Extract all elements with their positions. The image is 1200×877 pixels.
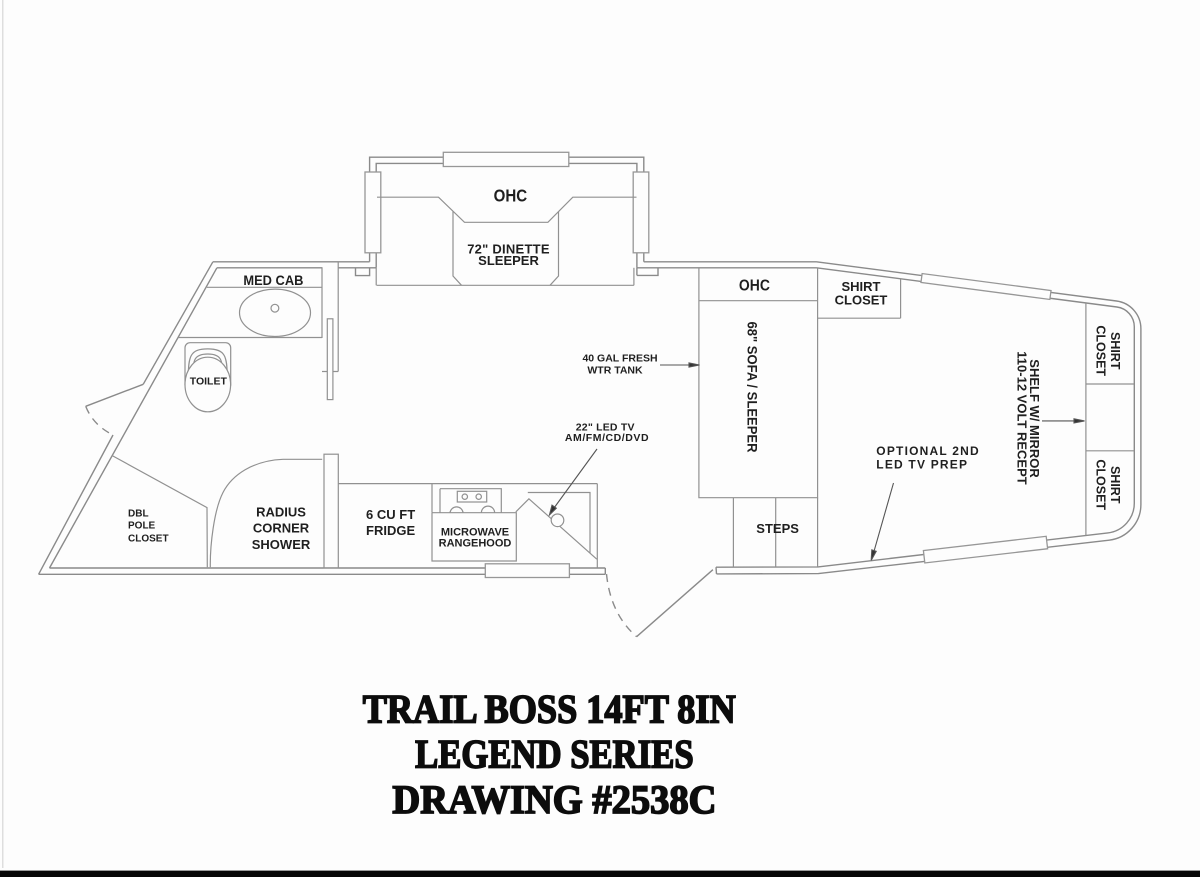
svg-text:TRAIL BOSS 14FT 8IN: TRAIL BOSS 14FT 8IN <box>363 687 736 732</box>
svg-text:CLOSET: CLOSET <box>128 533 169 544</box>
svg-text:RANGEHOOD: RANGEHOOD <box>439 538 512 550</box>
svg-text:SHOWER: SHOWER <box>252 537 311 552</box>
svg-text:AM/FM/CD/DVD: AM/FM/CD/DVD <box>565 432 649 444</box>
svg-text:CLOSET: CLOSET <box>1094 325 1108 376</box>
svg-text:DRAWING #2538C: DRAWING #2538C <box>392 777 716 822</box>
svg-text:SHIRT: SHIRT <box>1108 332 1122 370</box>
svg-text:MED CAB: MED CAB <box>243 272 303 288</box>
svg-text:CORNER: CORNER <box>253 521 310 536</box>
svg-text:FRIDGE: FRIDGE <box>366 523 415 538</box>
svg-text:SLEEPER: SLEEPER <box>478 253 539 268</box>
svg-text:OHC: OHC <box>494 185 528 205</box>
svg-text:OHC: OHC <box>739 277 770 294</box>
svg-text:CLOSET: CLOSET <box>835 293 888 308</box>
svg-text:TOILET: TOILET <box>190 376 228 388</box>
svg-text:LED TV PREP: LED TV PREP <box>876 458 968 472</box>
svg-text:POLE: POLE <box>128 521 156 532</box>
svg-text:6 CU FT: 6 CU FT <box>366 507 415 522</box>
svg-text:LEGEND SERIES: LEGEND SERIES <box>415 732 694 777</box>
svg-text:OPTIONAL 2ND: OPTIONAL 2ND <box>876 444 980 458</box>
svg-text:68" SOFA / SLEEPER: 68" SOFA / SLEEPER <box>745 322 761 453</box>
svg-text:SHIRT: SHIRT <box>1108 466 1122 504</box>
svg-text:STEPS: STEPS <box>756 521 799 536</box>
svg-text:DBL: DBL <box>128 509 149 520</box>
svg-text:40 GAL FRESH: 40 GAL FRESH <box>582 352 657 364</box>
svg-text:CLOSET: CLOSET <box>1094 459 1108 510</box>
svg-text:110-12 VOLT RECEPT: 110-12 VOLT RECEPT <box>1015 351 1030 484</box>
svg-text:RADIUS: RADIUS <box>256 505 306 520</box>
svg-text:WTR TANK: WTR TANK <box>587 365 643 377</box>
